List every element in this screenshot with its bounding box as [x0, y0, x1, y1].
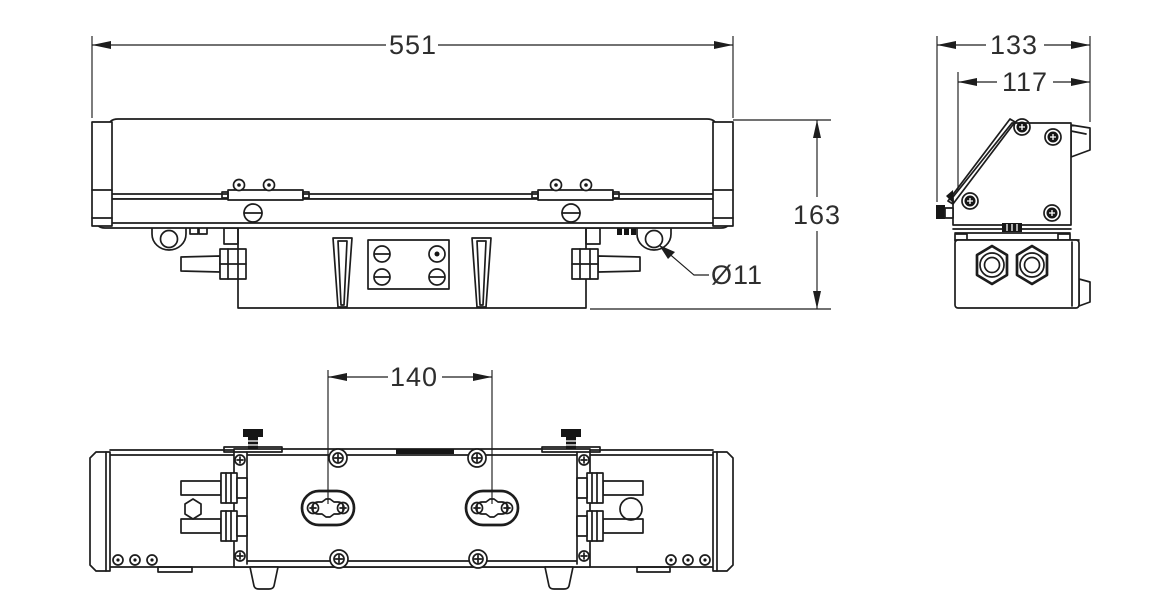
side-lower-box	[955, 240, 1079, 308]
cable-right-1	[603, 481, 643, 495]
side-view: 133 117	[936, 30, 1090, 308]
side-bracket-tab-bottom	[1079, 279, 1090, 306]
fixture-body	[92, 119, 733, 228]
bottom-center-box	[234, 449, 590, 568]
dim-label-163: 163	[793, 200, 841, 230]
gland-right-1	[577, 473, 603, 503]
bottom-wing-left	[113, 473, 247, 565]
cable-left-2	[181, 519, 221, 533]
gland-right-2	[577, 511, 603, 541]
drawing-canvas: 551	[0, 0, 1157, 600]
hex-feature-left	[185, 499, 201, 519]
terminal-plate	[368, 240, 449, 289]
side-upper-housing	[936, 119, 1071, 225]
front-view: 551	[92, 30, 841, 309]
cable-left-1	[181, 481, 221, 495]
cable-gland-left	[181, 249, 246, 279]
bracket-leg-left	[333, 238, 352, 307]
dimension-overall-length: 551	[92, 30, 733, 118]
foot-left	[250, 567, 278, 589]
gland-left-1	[221, 473, 247, 503]
side-knob	[936, 205, 953, 219]
dim-label-133: 133	[990, 30, 1038, 60]
mounting-eyelet-left	[152, 228, 186, 250]
leader-eyelet-diameter: Ø11	[659, 245, 763, 290]
wing-screws-right	[666, 555, 710, 565]
mounting-bracket	[152, 226, 671, 308]
end-cap-left	[92, 122, 112, 226]
gland-port-right	[1017, 246, 1047, 284]
gland-left-2	[221, 511, 247, 541]
cable-right-2	[603, 519, 643, 533]
bracket-leg-right	[472, 238, 491, 307]
dim-label-140: 140	[390, 362, 438, 392]
dim-label-551: 551	[389, 30, 437, 60]
wing-screws-left	[113, 555, 157, 565]
dim-label-117: 117	[1002, 67, 1048, 97]
mounting-eyelet-right	[637, 228, 671, 250]
foot-right	[545, 567, 573, 589]
dim-label-d11: Ø11	[711, 260, 763, 290]
bottom-view: 140	[90, 362, 733, 589]
round-feature-right	[620, 498, 642, 520]
side-bracket-tab-top	[1071, 125, 1090, 157]
end-cap-right	[713, 122, 733, 226]
bottom-wing-right	[577, 473, 710, 565]
engineering-drawing: 551	[0, 0, 1157, 600]
bottom-cap-left	[90, 452, 110, 571]
gland-port-left	[977, 246, 1007, 284]
cable-gland-right	[572, 249, 640, 279]
bottom-cap-right	[713, 452, 733, 571]
